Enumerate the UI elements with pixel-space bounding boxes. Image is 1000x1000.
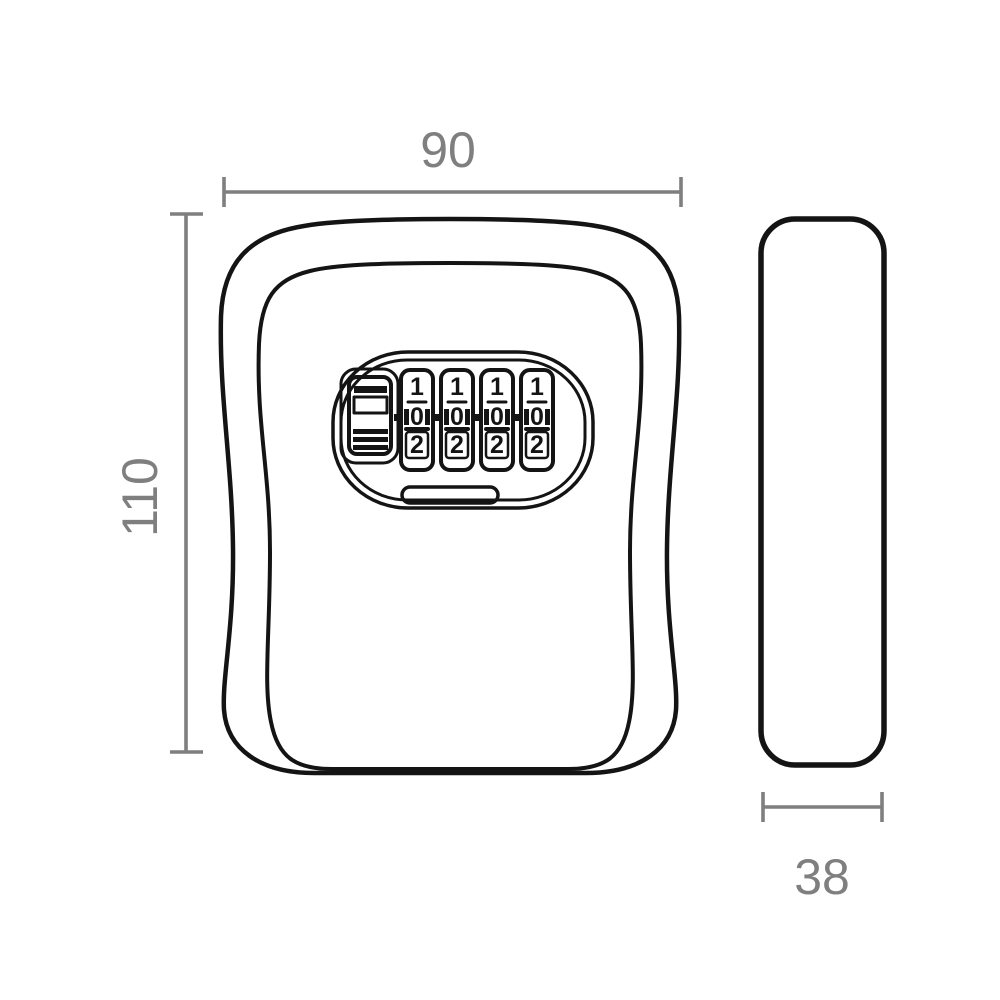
dial-digit-bottom: 2 [410, 431, 424, 459]
height-dimension-label: 110 [112, 457, 168, 537]
reset-button-grip-stripe [353, 445, 388, 450]
lock-box-technical-drawing: 90 110 [0, 0, 1000, 1000]
dial-digit-middle: 0 [490, 403, 504, 431]
lock-panel: 1 0 2 1 0 [333, 352, 593, 508]
dial-window-mark [404, 409, 409, 425]
dial-window-mark [444, 409, 449, 425]
width-dimension: 90 [224, 122, 681, 207]
dial-digit-middle: 0 [530, 403, 544, 431]
dial-digit-top: 1 [410, 373, 424, 401]
reset-button-group [341, 369, 398, 463]
dial-window-mark [505, 409, 510, 425]
dial-window-mark [545, 409, 550, 425]
dial-digit-bottom: 2 [450, 431, 464, 459]
width-dimension-label: 90 [420, 122, 476, 178]
reset-button-window [354, 397, 387, 413]
dial-digit-middle: 0 [410, 403, 424, 431]
front-cover-outline [259, 263, 642, 769]
dial-digit-bottom: 2 [530, 431, 544, 459]
combination-dial: 1 0 2 [521, 370, 553, 470]
dial-digit-bottom: 2 [490, 431, 504, 459]
height-dimension: 110 [112, 214, 203, 752]
front-view: 1 0 2 1 0 [221, 219, 679, 773]
outer-body-outline [221, 219, 679, 773]
combination-dial: 1 0 2 [401, 370, 433, 470]
dial-window-mark [524, 409, 529, 425]
side-view-body [761, 219, 884, 765]
side-view [761, 219, 884, 765]
dial-digit-top: 1 [450, 373, 464, 401]
dial-digit-top: 1 [490, 373, 504, 401]
dial-window-mark [425, 409, 430, 425]
combination-dial: 1 0 2 [481, 370, 513, 470]
combination-dial: 1 0 2 [441, 370, 473, 470]
reset-button-grip-stripe [353, 429, 388, 434]
technical-drawing-page: 90 110 [0, 0, 1000, 1000]
dial-digit-top: 1 [530, 373, 544, 401]
reset-button-grip-stripe [353, 437, 388, 442]
depth-dimension-label: 38 [794, 849, 850, 905]
depth-dimension: 38 [763, 792, 882, 905]
dial-digit-middle: 0 [450, 403, 464, 431]
dial-window-mark [465, 409, 470, 425]
reset-button-top-bar [354, 386, 387, 393]
dial-window-mark [484, 409, 489, 425]
